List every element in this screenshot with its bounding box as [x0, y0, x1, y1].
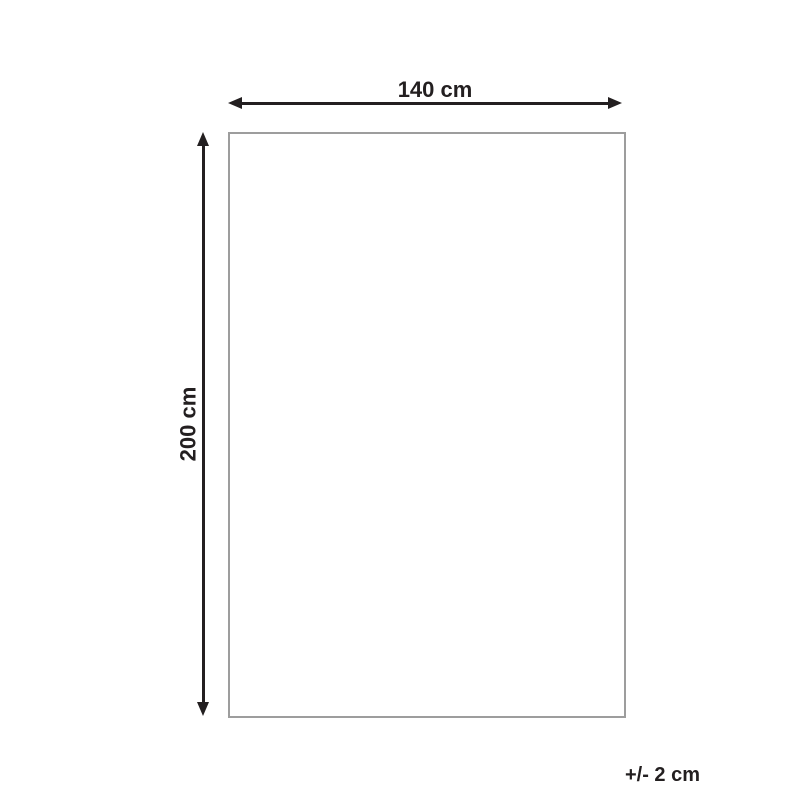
width-dimension-label: 140 cm [398, 79, 473, 101]
height-dimension-line [202, 143, 205, 705]
height-dimension: 200 cm [196, 132, 210, 716]
arrowhead-right-icon [608, 97, 622, 109]
arrowhead-up-icon [197, 132, 209, 146]
width-dimension: 140 cm [228, 96, 622, 110]
tolerance-note: +/- 2 cm [625, 765, 700, 785]
dimension-diagram: 140 cm 200 cm +/- 2 cm [0, 0, 800, 800]
product-outline-rect [228, 132, 626, 718]
height-dimension-label: 200 cm [177, 387, 199, 462]
arrowhead-down-icon [197, 702, 209, 716]
arrowhead-left-icon [228, 97, 242, 109]
